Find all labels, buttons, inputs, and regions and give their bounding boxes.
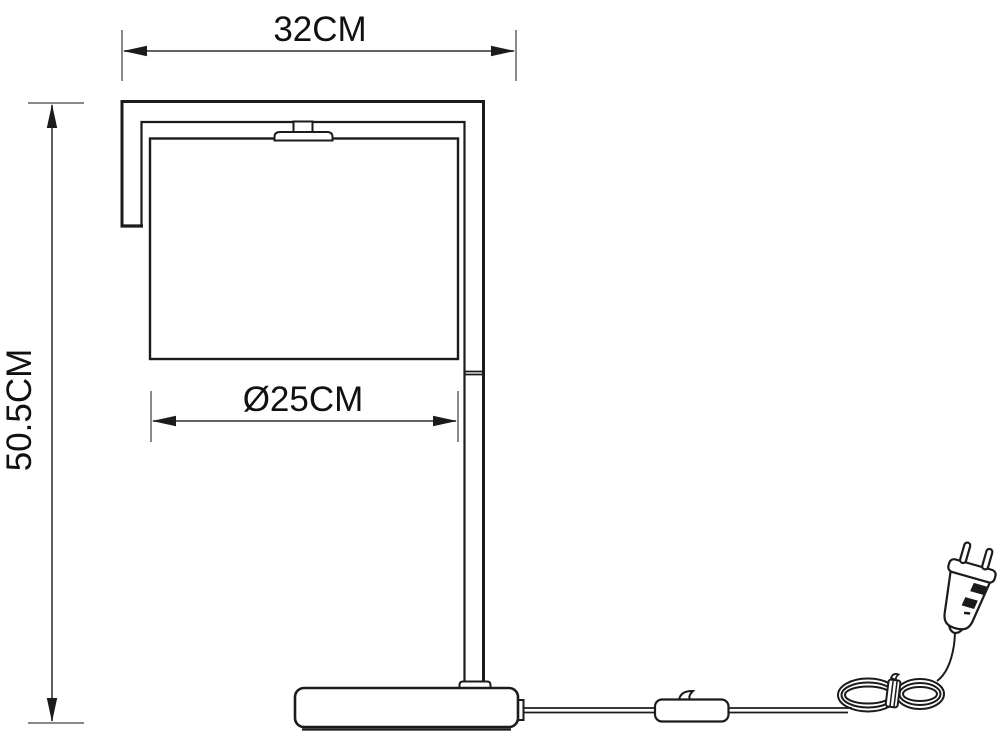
shade-diameter-label: Ø25CM	[243, 380, 364, 419]
coil-wrap	[885, 679, 900, 707]
coiled-cord	[838, 674, 944, 712]
arrowhead-right	[433, 416, 457, 426]
cord-segment-3	[937, 630, 955, 682]
height-dimension: 50.5CM	[0, 103, 84, 723]
inline-switch	[655, 691, 729, 722]
plug-detail-dash	[964, 612, 970, 615]
power-cord	[523, 630, 955, 722]
switch-body	[655, 700, 729, 722]
euro-plug	[931, 539, 1000, 639]
base	[295, 688, 518, 730]
base-body	[295, 688, 518, 727]
arrowhead-top	[47, 104, 57, 128]
lampshade	[150, 139, 458, 360]
bulb-holder-stem	[294, 122, 313, 133]
width-dimension: 32CM	[122, 10, 516, 81]
width-dimension-label: 32CM	[273, 10, 366, 49]
plug-pin-right	[982, 548, 994, 570]
shade-diameter-dimension: Ø25CM	[151, 380, 458, 442]
arrowhead-bottom	[47, 698, 57, 722]
bulb-holder-cap	[275, 132, 333, 141]
height-dimension-label: 50.5CM	[0, 349, 39, 472]
coil-wrap-tab	[891, 674, 899, 680]
arrowhead-left	[123, 46, 147, 56]
post-joint	[465, 372, 484, 375]
plug-pin-left	[959, 542, 971, 564]
bulb-holder	[275, 122, 333, 141]
arrowhead-left	[152, 416, 176, 426]
lamp-dimension-diagram: 32CM 50.5CM Ø25CM	[0, 0, 1000, 733]
arrowhead-right	[491, 46, 515, 56]
